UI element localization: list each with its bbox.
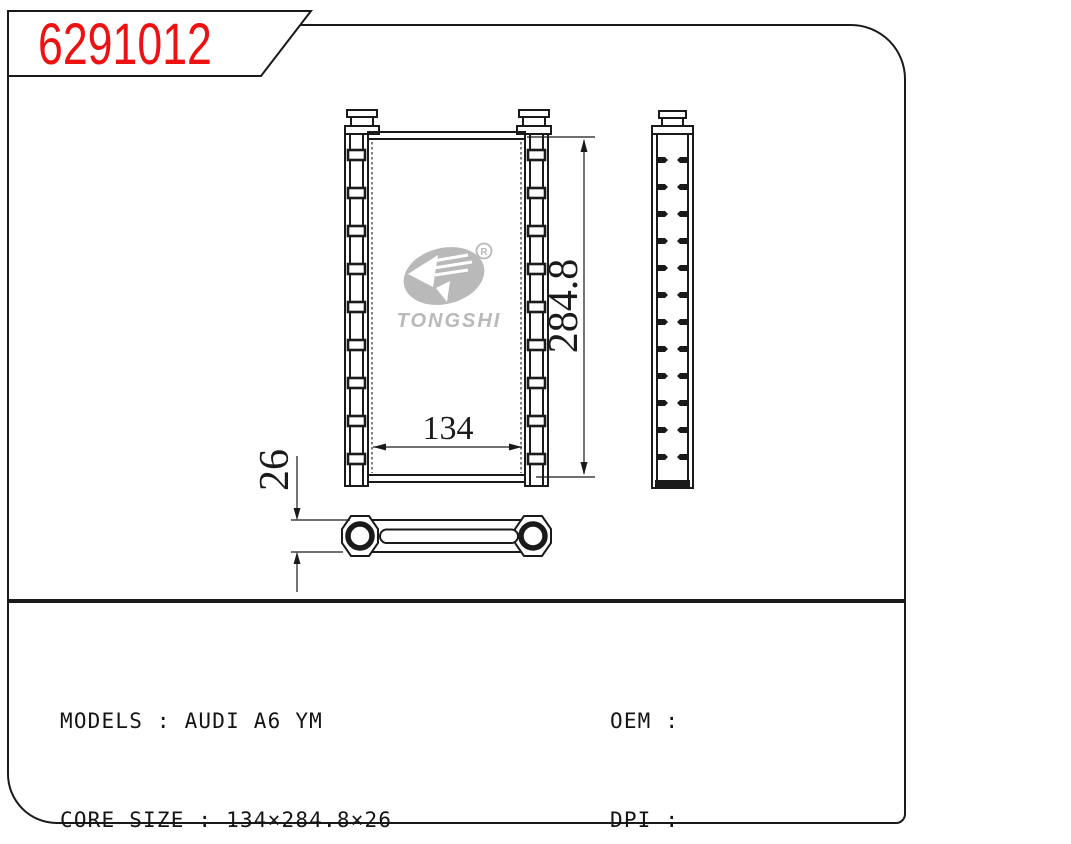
left-inlet-fitting bbox=[345, 110, 379, 134]
spec-sheet-page: R TONGSHI bbox=[0, 0, 1071, 844]
spec-line-models: MODELS : AUDI A6 YM bbox=[60, 705, 392, 738]
dimension-depth: 26 bbox=[252, 449, 350, 592]
side-view bbox=[652, 111, 693, 488]
specs-right-column: OEM : DPI : NISSENS : bbox=[610, 639, 735, 844]
dim-height-label: 284.8 bbox=[541, 259, 587, 354]
right-port bbox=[521, 524, 545, 548]
logo-wordmark: TONGSHI bbox=[397, 310, 502, 332]
right-outlet-fitting bbox=[517, 110, 551, 134]
tongshi-logo: R TONGSHI bbox=[397, 239, 502, 332]
dimension-width: 134 bbox=[373, 410, 522, 451]
top-view-slot bbox=[380, 530, 518, 544]
registered-mark-icon: R bbox=[477, 244, 492, 259]
dim-depth-label: 26 bbox=[252, 449, 298, 491]
dim-width-label: 134 bbox=[423, 410, 474, 447]
side-view-ticks bbox=[657, 157, 688, 460]
spec-line-dpi: DPI : bbox=[610, 804, 735, 837]
spec-line-core-size: CORE SIZE : 134×284.8×26 bbox=[60, 804, 392, 837]
specs-left-column: MODELS : AUDI A6 YM CORE SIZE : 134×284.… bbox=[60, 639, 392, 844]
top-view bbox=[342, 516, 551, 556]
left-tank bbox=[345, 134, 368, 486]
spec-line-oem: OEM : bbox=[610, 705, 735, 738]
left-tank-baffles bbox=[348, 150, 365, 464]
registered-mark-letter: R bbox=[480, 247, 488, 258]
left-port bbox=[348, 524, 372, 548]
part-number-text: 6291012 bbox=[38, 16, 212, 74]
